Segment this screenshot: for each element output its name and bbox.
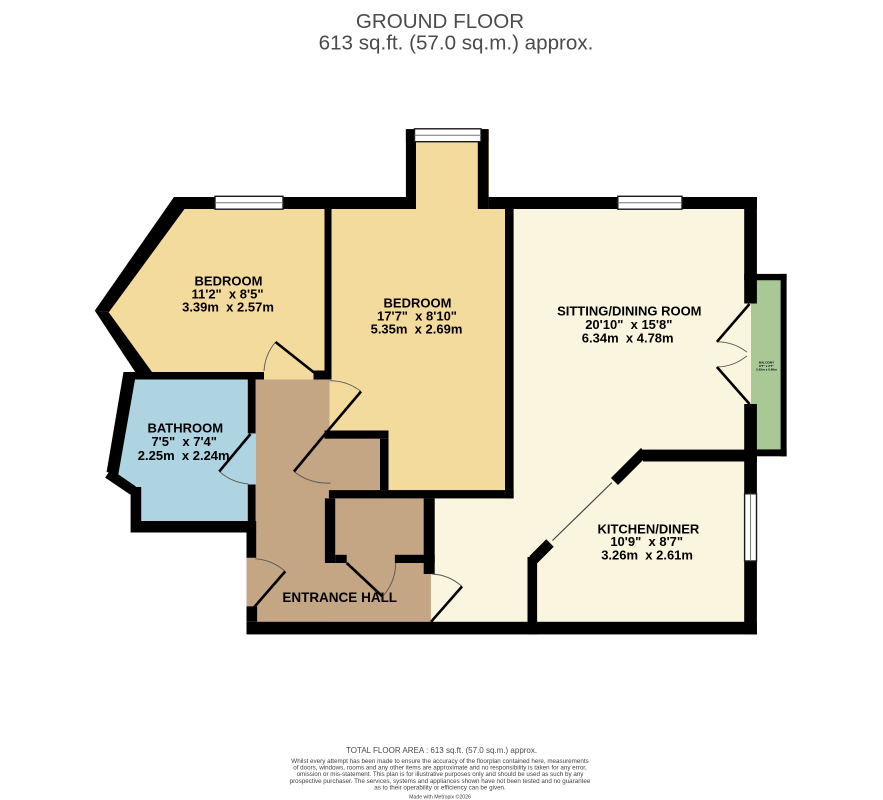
svg-text:Made with Metropix ©2026: Made with Metropix ©2026 (409, 794, 471, 800)
svg-text:GROUND FLOOR: GROUND FLOOR (356, 10, 524, 33)
svg-text:3.39m x 2.57m: 3.39m x 2.57m (182, 300, 274, 315)
svg-text:TOTAL FLOOR AREA : 613 sq.ft.: TOTAL FLOOR AREA : 613 sq.ft. (57.0 sq.m… (346, 746, 537, 755)
svg-text:ENTRANCE HALL: ENTRANCE HALL (282, 590, 397, 605)
svg-text:3.26m x 2.61m: 3.26m x 2.61m (601, 548, 693, 563)
svg-text:613 sq.ft. (57.0 sq.m.) approx: 613 sq.ft. (57.0 sq.m.) approx. (319, 32, 594, 55)
svg-text:as to their operability or eff: as to their operability or efficiency ca… (374, 785, 506, 792)
svg-text:2.25m x 2.24m: 2.25m x 2.24m (138, 448, 230, 463)
svg-text:BATHROOM: BATHROOM (148, 420, 224, 435)
svg-text:6.34m x 4.78m: 6.34m x 4.78m (582, 331, 674, 346)
svg-text:5.35m x 2.69m: 5.35m x 2.69m (371, 321, 463, 336)
svg-text:7'5" x 7'4": 7'5" x 7'4" (151, 434, 217, 449)
svg-text:2.63m x 0.80m: 2.63m x 0.80m (756, 368, 777, 372)
